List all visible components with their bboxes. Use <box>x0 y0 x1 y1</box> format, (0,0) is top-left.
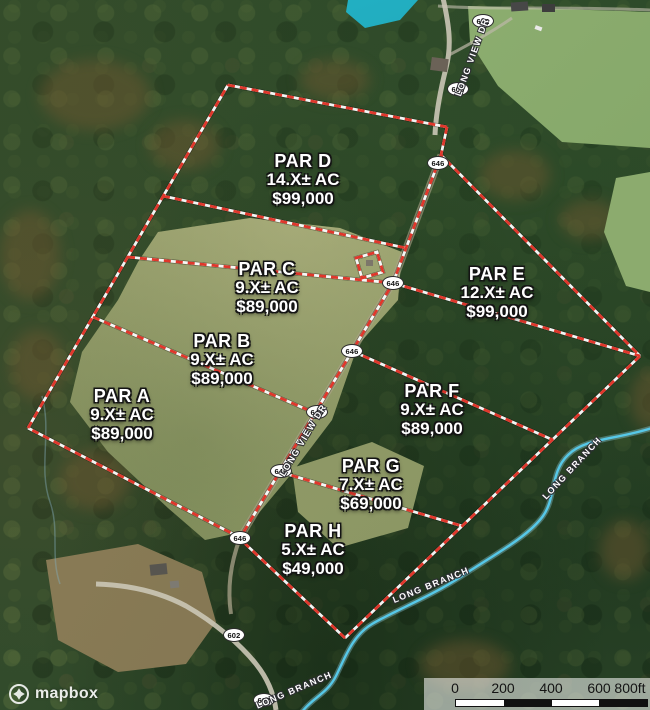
parcel-label-f: PAR F 9.X± AC $89,000 <box>400 382 464 438</box>
parcel-name: PAR A <box>90 387 154 406</box>
vehicle <box>534 25 542 31</box>
building <box>511 1 529 11</box>
parcel-price: $89,000 <box>190 370 254 388</box>
parcel-label-c: PAR C 9.X± AC $89,000 <box>235 260 299 316</box>
mapbox-logo[interactable]: mapbox <box>8 683 98 705</box>
building <box>430 57 449 72</box>
building <box>542 4 555 12</box>
road-connector <box>229 538 240 614</box>
parcel-name: PAR D <box>267 152 340 171</box>
parcel-name: PAR C <box>235 260 299 279</box>
scale-tick-label: 800ft <box>614 680 645 696</box>
parcel-acreage: 9.X± AC <box>400 401 464 419</box>
route-shield: 646 <box>341 344 363 358</box>
parcel-label-h: PAR H 5.X± AC $49,000 <box>281 522 345 578</box>
stream-layer <box>42 396 650 710</box>
parcel-label-d: PAR D 14.X± AC $99,000 <box>267 152 340 208</box>
parcel-name: PAR F <box>400 382 464 401</box>
scale-tick-label: 400 <box>539 680 562 696</box>
parcel-label-g: PAR G 7.X± AC $69,000 <box>339 457 403 513</box>
map-canvas[interactable]: 602 603 646 646 646 646 646 646 602 602 … <box>0 0 650 710</box>
parcel-acreage: 9.X± AC <box>235 279 299 297</box>
map-scale-bar: 0 200 400 600 800ft <box>424 678 650 710</box>
parcel-price: $99,000 <box>267 190 340 208</box>
scale-segment <box>456 700 504 706</box>
mapbox-wordmark: mapbox <box>35 685 98 703</box>
scale-segment <box>552 700 600 706</box>
scale-tick-label: 0 <box>451 680 459 696</box>
mapbox-icon <box>8 683 30 705</box>
parcel-price: $99,000 <box>461 303 534 321</box>
building <box>366 260 373 266</box>
route-shield: 646 <box>229 531 251 545</box>
parcel-name: PAR E <box>461 265 534 284</box>
parcel-price: $89,000 <box>90 425 154 443</box>
road-602 <box>96 584 276 710</box>
route-shield: 602 <box>223 628 245 642</box>
parcel-acreage: 12.X± AC <box>461 284 534 302</box>
parcel-price: $89,000 <box>235 298 299 316</box>
parcel-price: $49,000 <box>281 560 345 578</box>
building <box>150 563 168 576</box>
scale-track <box>455 699 648 707</box>
parcel-acreage: 14.X± AC <box>267 171 340 189</box>
parcel-price: $89,000 <box>400 420 464 438</box>
scale-tick-label: 600 <box>587 680 610 696</box>
parcel-price: $69,000 <box>339 495 403 513</box>
building <box>170 580 180 588</box>
parcel-label-a: PAR A 9.X± AC $89,000 <box>90 387 154 443</box>
parcel-name: PAR B <box>190 332 254 351</box>
stream-minor <box>42 396 60 584</box>
route-shield: 646 <box>382 276 404 290</box>
route-shield: 646 <box>427 156 449 170</box>
parcel-name: PAR G <box>339 457 403 476</box>
parcel-acreage: 9.X± AC <box>90 406 154 424</box>
parcel-name: PAR H <box>281 522 345 541</box>
map-vector-overlay <box>0 0 650 710</box>
parcel-acreage: 7.X± AC <box>339 476 403 494</box>
scale-segment <box>504 700 552 706</box>
parcel-acreage: 9.X± AC <box>190 351 254 369</box>
parcel-label-e: PAR E 12.X± AC $99,000 <box>461 265 534 321</box>
scale-segment <box>599 700 647 706</box>
scale-tick-label: 200 <box>491 680 514 696</box>
parcel-acreage: 5.X± AC <box>281 541 345 559</box>
parcel-label-b: PAR B 9.X± AC $89,000 <box>190 332 254 388</box>
